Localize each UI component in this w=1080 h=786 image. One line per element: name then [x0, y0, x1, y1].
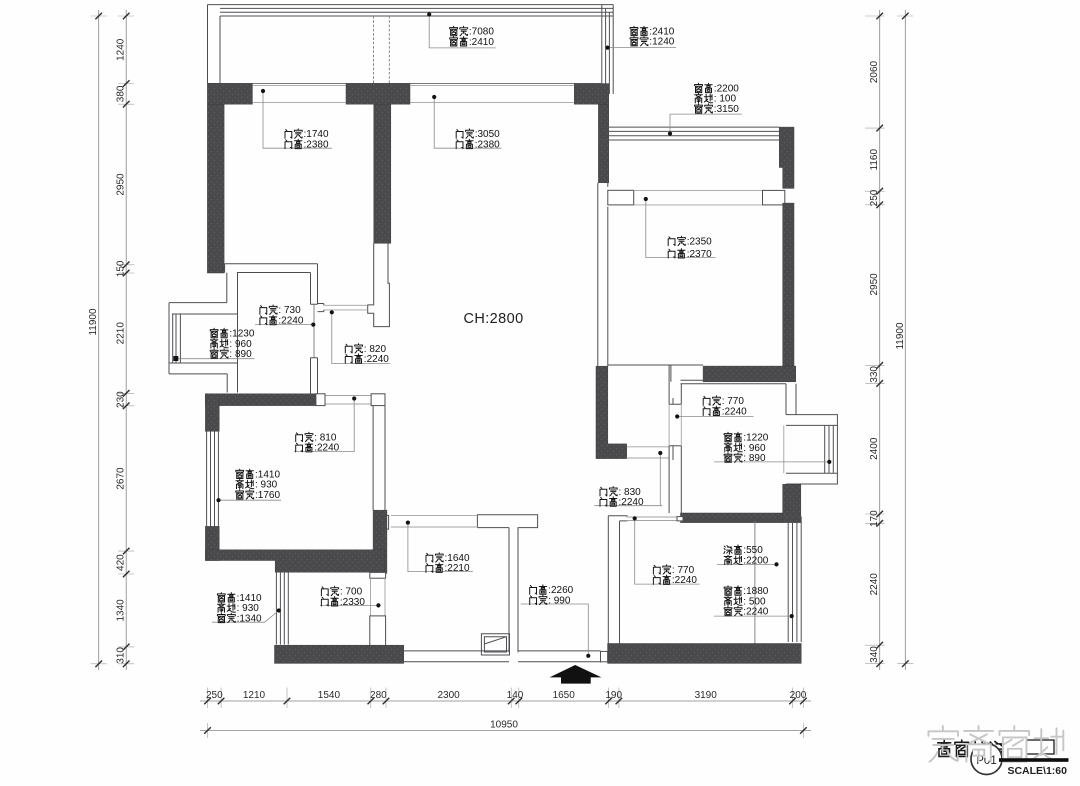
svg-text:10950: 10950	[490, 719, 518, 730]
svg-text:2240: 2240	[869, 573, 880, 596]
svg-text:2950: 2950	[869, 273, 880, 296]
svg-text:2300: 2300	[437, 690, 460, 701]
svg-text:2210: 2210	[116, 322, 127, 345]
svg-text::1240: :1240	[649, 37, 674, 48]
svg-text::2330: :2330	[340, 597, 365, 608]
svg-text:2400: 2400	[869, 437, 880, 460]
svg-text:1340: 1340	[116, 599, 127, 622]
svg-text:1240: 1240	[116, 38, 127, 61]
svg-text:310: 310	[116, 647, 127, 664]
svg-text:150: 150	[116, 260, 127, 277]
svg-text::2240: :2240	[619, 497, 644, 508]
svg-text::2350: :2350	[687, 236, 712, 247]
svg-text::2240: :2240	[722, 406, 747, 417]
svg-text:11900: 11900	[88, 308, 99, 336]
svg-text::2200: :2200	[743, 555, 768, 566]
svg-text::2240: :2240	[364, 354, 389, 365]
svg-text:280: 280	[370, 690, 387, 701]
svg-text::1760: :1760	[255, 490, 280, 501]
svg-text::2370: :2370	[687, 249, 712, 260]
svg-text:250: 250	[869, 189, 880, 206]
svg-text::2210: :2210	[445, 563, 470, 574]
svg-text:340: 340	[869, 646, 880, 663]
svg-text:170: 170	[869, 510, 880, 527]
svg-text:3190: 3190	[695, 690, 718, 701]
svg-text:1540: 1540	[318, 690, 341, 701]
svg-text:380: 380	[116, 85, 127, 102]
svg-text::2410: :2410	[469, 37, 494, 48]
svg-text:250: 250	[206, 690, 223, 701]
svg-text::1340: :1340	[237, 613, 262, 624]
svg-text:SCALE\1:60: SCALE\1:60	[1007, 765, 1067, 777]
svg-text:2670: 2670	[116, 467, 127, 490]
svg-text:1210: 1210	[243, 690, 266, 701]
svg-text:140: 140	[507, 690, 524, 701]
svg-text:: 890: : 890	[743, 453, 766, 464]
svg-text:330: 330	[869, 366, 880, 383]
svg-text::2380: :2380	[475, 139, 500, 150]
svg-text:1650: 1650	[553, 690, 576, 701]
svg-text:1160: 1160	[869, 149, 880, 171]
svg-text::3150: :3150	[714, 104, 739, 115]
svg-text:190: 190	[605, 690, 622, 701]
svg-text:230: 230	[116, 391, 127, 408]
svg-text::2240: :2240	[672, 575, 697, 586]
svg-text:2060: 2060	[869, 60, 880, 83]
svg-text::2240: :2240	[743, 607, 768, 618]
svg-text:11900: 11900	[895, 322, 906, 350]
svg-text:CH:2800: CH:2800	[464, 311, 524, 327]
svg-text:200: 200	[790, 690, 807, 701]
svg-text:: 990: : 990	[548, 595, 571, 606]
svg-text::2240: :2240	[314, 443, 339, 454]
svg-text:2950: 2950	[116, 173, 127, 196]
svg-text:420: 420	[116, 554, 127, 571]
svg-text::2380: :2380	[304, 139, 329, 150]
svg-text:: 890: : 890	[229, 349, 252, 360]
svg-text::2240: :2240	[278, 316, 303, 327]
